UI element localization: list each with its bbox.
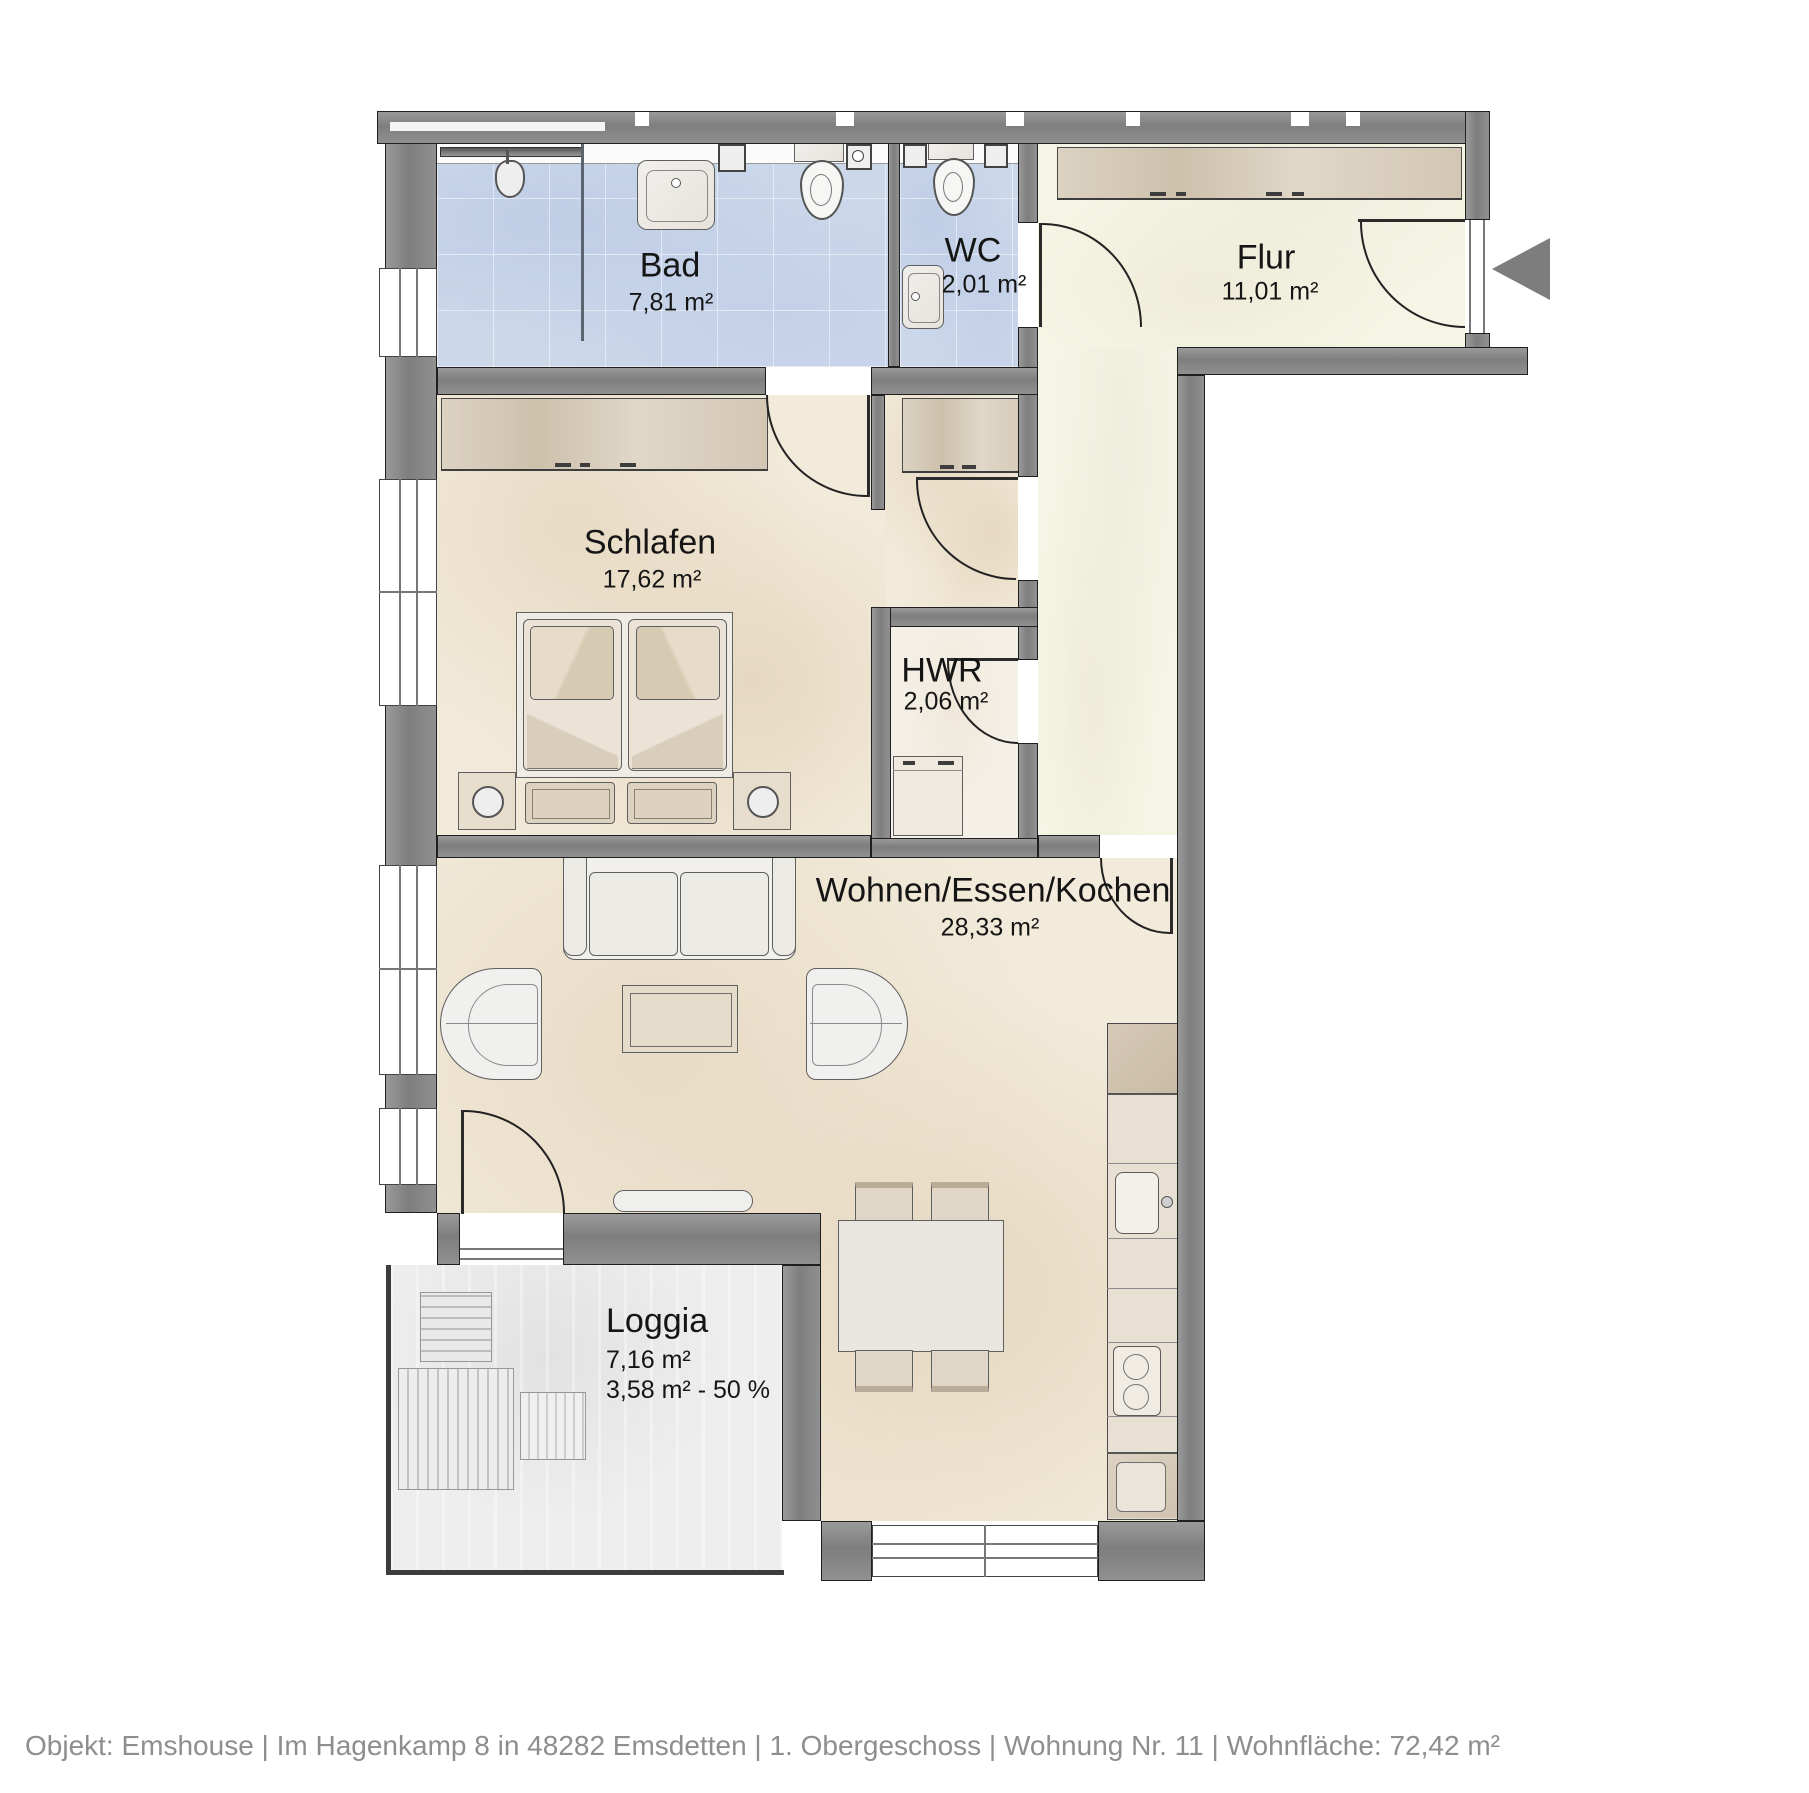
washer-button	[938, 761, 954, 765]
room-area-hwr: 2,06 m²	[904, 688, 989, 717]
room-area-schlafen: 17,62 m²	[603, 566, 702, 595]
wall	[871, 838, 1038, 858]
dining-table	[838, 1220, 1004, 1352]
kitchen-counter	[1107, 1023, 1180, 1520]
armchair-split	[810, 1023, 902, 1024]
armchair-split	[446, 1023, 538, 1024]
bed-pillow-right	[636, 626, 720, 700]
bed-blanket-fold-right	[632, 704, 723, 769]
room-label-wohnen: Wohnen/Essen/Kochen	[816, 872, 1171, 911]
wall	[563, 1213, 821, 1265]
kitchen-seg-line	[1107, 1093, 1180, 1095]
washer-button	[903, 761, 915, 765]
wall	[437, 1213, 460, 1265]
wardrobe-handle	[620, 463, 636, 467]
dining-chair	[931, 1182, 989, 1224]
kitchen-faucet-icon	[1161, 1196, 1173, 1208]
bed-pillow-left	[530, 626, 614, 700]
window	[379, 1108, 437, 1185]
wall	[1018, 327, 1038, 477]
kitchen-seg-line	[1107, 1288, 1180, 1289]
hwr-door-opening	[1018, 660, 1038, 743]
coffee-table-top	[630, 993, 732, 1047]
wardrobe-handle	[962, 465, 976, 469]
window-glazing	[399, 865, 401, 1075]
wall	[1098, 1521, 1205, 1581]
bad-toilet-bowl-inner	[810, 174, 832, 206]
wall	[1038, 835, 1100, 858]
wall	[888, 143, 900, 367]
wall	[437, 367, 766, 395]
window-transom	[379, 591, 437, 593]
kitchen-seg-line	[1107, 1416, 1180, 1417]
entrance-frame	[1483, 220, 1485, 333]
room-label-schlafen: Schlafen	[584, 524, 716, 563]
wohnen-door-leaf	[1170, 858, 1173, 934]
bed-blanket-fold-left	[527, 704, 618, 769]
bad-faucet-icon	[671, 178, 681, 188]
wall	[437, 835, 871, 858]
room-label-loggia: Loggia	[606, 1302, 708, 1341]
wardrobe-handle	[940, 465, 954, 469]
hob-burner-icon	[1123, 1354, 1149, 1380]
room-label-hwr: HWR	[901, 652, 982, 691]
sideboard	[613, 1190, 753, 1212]
washer-panel-line	[893, 770, 963, 771]
room-label-flur: Flur	[1237, 239, 1296, 278]
wall	[871, 607, 891, 858]
wall	[1018, 143, 1038, 223]
room-area-loggia-half: 3,58 m² - 50 %	[606, 1376, 770, 1405]
shower-head-icon	[495, 160, 525, 198]
kitchen-seg-line	[1107, 1238, 1180, 1239]
wardrobe-handle	[1176, 192, 1186, 196]
bad-door-leaf	[867, 395, 870, 497]
wc-shelf-box-left	[903, 144, 927, 168]
window-transom	[379, 968, 437, 970]
dining-chair	[931, 1350, 989, 1392]
room-area-wohnen: 28,33 m²	[941, 914, 1040, 943]
wall	[1177, 375, 1205, 1521]
wall	[871, 607, 1038, 627]
party-wall-gap	[390, 122, 605, 131]
kitchen-seg-line	[1107, 1342, 1180, 1343]
wall	[782, 1265, 821, 1521]
dining-chair	[855, 1350, 913, 1392]
bad-door-opening	[766, 367, 871, 395]
window	[379, 268, 437, 357]
room-area-loggia: 7,16 m²	[606, 1346, 691, 1375]
kitchen-seg-line	[1107, 1163, 1180, 1164]
top-wall-notch	[1346, 112, 1360, 126]
loggia-table	[420, 1292, 492, 1362]
wardrobe-handle	[1266, 192, 1282, 196]
wardrobe-handle	[580, 463, 590, 467]
wall	[1177, 347, 1528, 375]
wc-shelf-box-right	[984, 144, 1008, 168]
loggia-side-table	[520, 1392, 586, 1460]
window-glazing	[416, 268, 418, 357]
floor-plan-canvas: Bad 7,81 m² WC 2,01 m² Flur 11,01 m² Sch…	[0, 0, 1809, 1793]
sofa-cushion-right	[680, 872, 769, 956]
loggia-railing-bottom	[386, 1570, 784, 1575]
room-label-wc: WC	[945, 232, 1002, 271]
schlafen-door-opening	[1018, 477, 1038, 580]
wall	[821, 1521, 872, 1581]
room-area-wc: 2,01 m²	[942, 271, 1027, 300]
dining-chair	[855, 1182, 913, 1224]
alcove-wardrobe	[902, 398, 1035, 473]
bed-bench-inner	[532, 789, 610, 819]
room-area-flur: 11,01 m²	[1222, 278, 1319, 307]
shower-rail	[440, 147, 584, 157]
wardrobe-handle	[1150, 192, 1166, 196]
schlafen-wardrobe-front-line	[441, 469, 768, 471]
loggia-door-sill	[460, 1258, 563, 1260]
loggia-railing-left	[386, 1265, 391, 1575]
entrance-arrow-icon	[1492, 238, 1550, 300]
top-wall-notch	[1006, 112, 1024, 126]
loggia-lounger	[398, 1368, 514, 1490]
top-wall-notch	[1291, 112, 1309, 126]
shower-hose	[506, 150, 509, 164]
bad-toilet-cistern	[794, 142, 844, 162]
hob-burner-icon	[1123, 1384, 1149, 1410]
kitchen-fridge-inner	[1116, 1462, 1166, 1512]
wall	[1465, 111, 1490, 220]
sofa-cushion-left	[589, 872, 678, 956]
room-label-bad: Bad	[640, 247, 701, 286]
bad-tp-roll	[852, 150, 864, 162]
wall	[871, 395, 885, 510]
sofa-armrest-left	[563, 850, 587, 956]
shower-glass-divider	[581, 143, 584, 341]
wohnen-door-opening	[1100, 835, 1177, 858]
loggia-door-sill	[460, 1248, 563, 1250]
top-wall-notch	[836, 112, 854, 126]
nightstand-lamp-icon	[747, 786, 779, 818]
wall	[871, 367, 1038, 395]
window-glazing	[399, 1108, 401, 1185]
footer-caption: Objekt: Emshouse | Im Hagenkamp 8 in 482…	[25, 1730, 1500, 1762]
washing-machine	[893, 756, 963, 836]
flur-corridor-floor	[1038, 347, 1177, 835]
bed-bench-inner	[634, 789, 712, 819]
window-glazing	[399, 268, 401, 357]
flur-wardrobe	[1057, 147, 1462, 200]
window-glazing	[416, 865, 418, 1075]
wardrobe-handle	[1292, 192, 1304, 196]
window-glazing	[416, 1108, 418, 1185]
sofa-armrest-right	[772, 850, 796, 956]
entrance-frame	[1469, 220, 1471, 333]
bad-shelf-box	[718, 144, 746, 172]
top-wall-notch	[635, 112, 649, 126]
window-mullion	[984, 1525, 986, 1577]
wardrobe-handle	[555, 463, 571, 467]
schlafen-wardrobe	[441, 398, 768, 471]
kitchen-sink	[1115, 1172, 1159, 1234]
nightstand-lamp-icon	[472, 786, 504, 818]
room-area-bad: 7,81 m²	[629, 289, 714, 318]
wc-toilet-bowl-inner	[943, 172, 963, 202]
wc-faucet-icon	[911, 292, 920, 301]
flur-wardrobe-front-line	[1057, 198, 1462, 200]
window	[379, 865, 437, 1075]
kitchen-tall-cabinet	[1108, 1024, 1179, 1093]
top-wall-notch	[1126, 112, 1140, 126]
armchair-left-seat	[468, 984, 538, 1066]
alcove-wardrobe-front-line	[902, 471, 1035, 473]
